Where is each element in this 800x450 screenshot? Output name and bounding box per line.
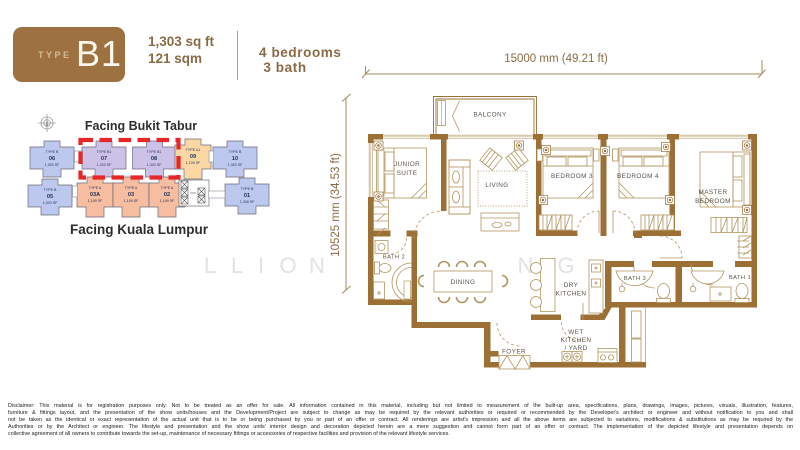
svg-text:TYPE B1: TYPE B1: [97, 150, 112, 154]
svg-text:N: N: [309, 253, 325, 278]
svg-text:FOYER: FOYER: [502, 349, 526, 356]
svg-text:03A: 03A: [90, 192, 100, 198]
svg-text:TYPE B: TYPE B: [229, 150, 242, 154]
svg-text:TYPE A: TYPE A: [161, 186, 174, 190]
svg-text:KITCHEN: KITCHEN: [561, 337, 592, 344]
svg-text:Facing Bukit Tabur: Facing Bukit Tabur: [85, 119, 197, 133]
svg-text:1,303 SF: 1,303 SF: [45, 163, 60, 167]
svg-text:TYPE A1: TYPE A1: [186, 148, 201, 152]
svg-text:15000 mm (49.21 ft): 15000 mm (49.21 ft): [504, 53, 608, 65]
svg-text:MASTER: MASTER: [698, 189, 727, 196]
svg-text:G: G: [558, 253, 575, 278]
svg-text:10: 10: [232, 156, 238, 162]
svg-text:TYPE A: TYPE A: [125, 186, 138, 190]
svg-text:WET: WET: [568, 329, 583, 336]
svg-text:TYPE B: TYPE B: [241, 187, 254, 191]
svg-text:03: 03: [128, 192, 134, 198]
svg-text:1,109 SF: 1,109 SF: [186, 161, 201, 165]
svg-text:1,109 SF: 1,109 SF: [88, 199, 103, 203]
svg-text:1,303 SF: 1,303 SF: [97, 163, 112, 167]
svg-text:01: 01: [244, 193, 250, 199]
svg-text:L: L: [204, 253, 216, 278]
svg-text:1,303 SF: 1,303 SF: [228, 163, 243, 167]
svg-text:BATH 3: BATH 3: [624, 276, 646, 282]
svg-text:KITCHEN: KITCHEN: [556, 291, 587, 298]
svg-text:DINING: DINING: [451, 279, 476, 286]
svg-text:BATH 2: BATH 2: [383, 255, 405, 261]
svg-text:07: 07: [101, 156, 107, 162]
svg-text:Facing Kuala Lumpur: Facing Kuala Lumpur: [70, 222, 209, 237]
svg-text:TYPE A: TYPE A: [89, 186, 102, 190]
svg-text:1,109 SF: 1,109 SF: [160, 199, 175, 203]
svg-text:08: 08: [151, 156, 157, 162]
svg-text:LIVING: LIVING: [485, 182, 508, 189]
svg-text:I: I: [258, 253, 264, 278]
svg-text:BEDROOM 3: BEDROOM 3: [551, 173, 593, 180]
svg-text:1,308 SF: 1,308 SF: [240, 200, 255, 204]
svg-text:1,303 SF: 1,303 SF: [43, 201, 58, 205]
svg-text:TYPE B: TYPE B: [46, 150, 59, 154]
svg-text:DRY: DRY: [564, 282, 579, 289]
svg-text:06: 06: [49, 156, 55, 162]
svg-text:1,109 SF: 1,109 SF: [124, 199, 139, 203]
svg-text:1,303 SF: 1,303 SF: [147, 163, 162, 167]
svg-text:TYPE B: TYPE B: [44, 188, 57, 192]
svg-text:BEDROOM: BEDROOM: [695, 198, 731, 205]
svg-text:O: O: [280, 253, 297, 278]
svg-text:L: L: [231, 253, 243, 278]
svg-text:BALCONY: BALCONY: [473, 112, 507, 119]
svg-text:02: 02: [164, 192, 170, 198]
svg-text:/ YARD: / YARD: [564, 345, 587, 352]
svg-text:SUITE: SUITE: [397, 170, 418, 177]
svg-text:BATH 1: BATH 1: [729, 275, 751, 281]
svg-text:05: 05: [47, 194, 53, 200]
svg-text:BEDROOM 4: BEDROOM 4: [617, 173, 659, 180]
svg-text:TYPE B1: TYPE B1: [147, 150, 162, 154]
svg-text:09: 09: [190, 154, 196, 160]
svg-text:JUNIOR: JUNIOR: [394, 161, 420, 168]
svg-text:10525 mm (34.53 ft): 10525 mm (34.53 ft): [330, 153, 342, 257]
